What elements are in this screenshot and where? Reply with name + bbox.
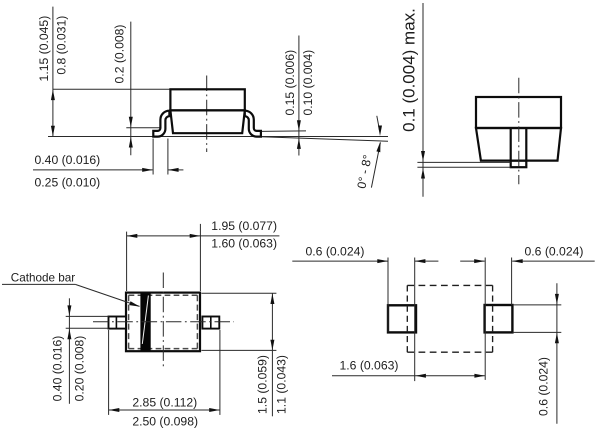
svg-text:0.25 (0.010): 0.25 (0.010): [35, 176, 101, 190]
svg-text:0.40 (0.016): 0.40 (0.016): [35, 153, 101, 167]
svg-text:0.15 (0.006): 0.15 (0.006): [283, 50, 297, 116]
svg-text:0.2 (0.008): 0.2 (0.008): [113, 25, 127, 84]
svg-text:2.50 (0.098): 2.50 (0.098): [132, 414, 198, 428]
svg-text:0.1 (0.004) max.: 0.1 (0.004) max.: [399, 8, 418, 132]
svg-text:1.1 (0.043): 1.1 (0.043): [275, 355, 289, 414]
svg-text:1.15 (0.045): 1.15 (0.045): [37, 16, 51, 82]
svg-text:1.60 (0.063): 1.60 (0.063): [211, 236, 277, 250]
svg-text:0.8 (0.031): 0.8 (0.031): [55, 16, 69, 75]
svg-text:Cathode bar: Cathode bar: [11, 271, 75, 284]
svg-text:0.6 (0.024): 0.6 (0.024): [537, 357, 551, 416]
svg-text:2.85 (0.112): 2.85 (0.112): [132, 396, 197, 410]
svg-text:0.20 (0.008): 0.20 (0.008): [73, 336, 87, 402]
svg-text:0.40 (0.016): 0.40 (0.016): [51, 336, 65, 402]
svg-text:1.95 (0.077): 1.95 (0.077): [211, 219, 277, 233]
svg-text:1.5 (0.059): 1.5 (0.059): [255, 355, 269, 414]
svg-text:0.10 (0.004): 0.10 (0.004): [301, 50, 315, 116]
svg-text:0.6 (0.024): 0.6 (0.024): [306, 245, 365, 259]
svg-text:1.6 (0.063): 1.6 (0.063): [340, 359, 399, 373]
svg-text:0.6 (0.024): 0.6 (0.024): [525, 245, 584, 259]
